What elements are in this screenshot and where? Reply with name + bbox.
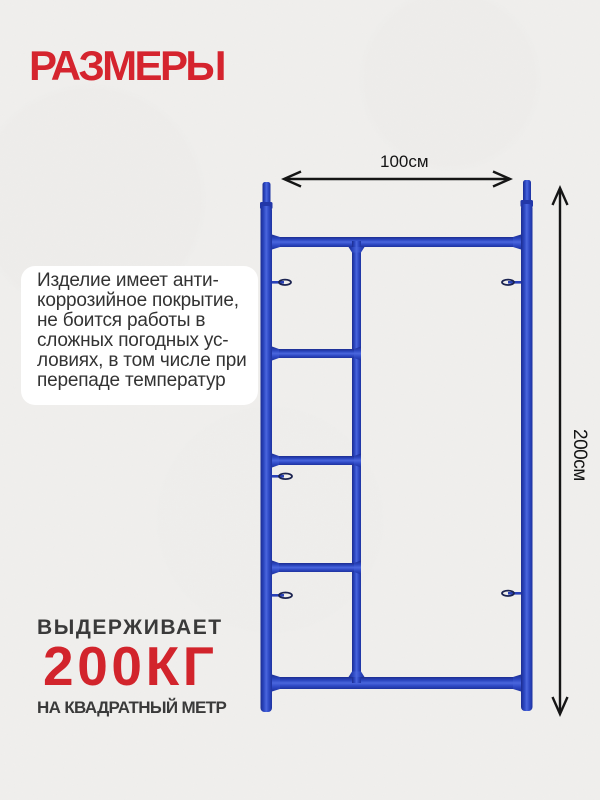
svg-text:200см: 200см xyxy=(569,429,590,481)
svg-text:100см: 100см xyxy=(380,152,429,171)
